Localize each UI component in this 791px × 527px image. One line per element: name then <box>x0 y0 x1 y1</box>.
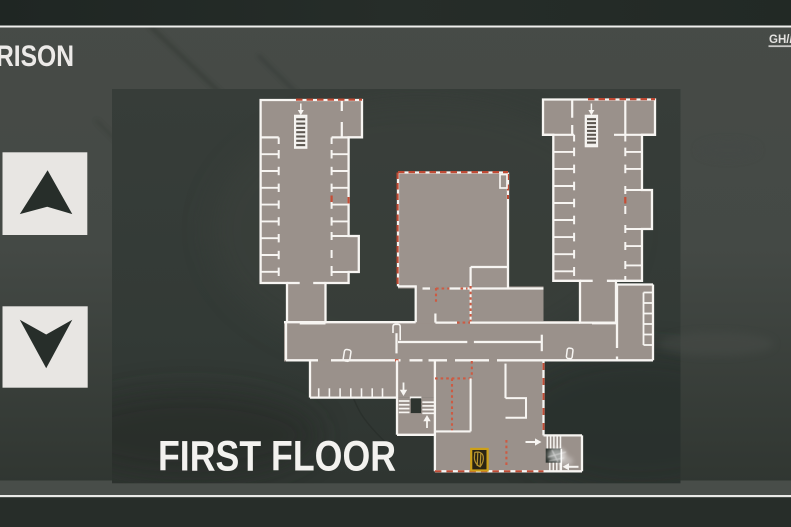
svg-text:GH//: GH// <box>769 34 791 46</box>
svg-text:FIRST FLOOR: FIRST FLOOR <box>158 433 396 481</box>
svg-text:RISON: RISON <box>0 40 74 73</box>
